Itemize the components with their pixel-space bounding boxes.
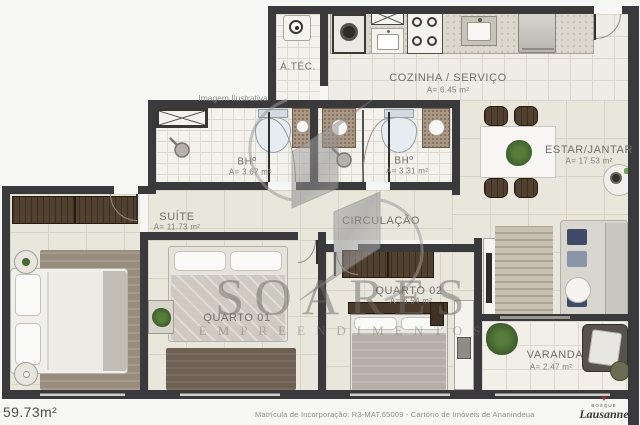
room-label-bh2: BHº	[394, 156, 413, 167]
fridge-icon	[518, 13, 556, 53]
wall	[310, 100, 318, 190]
room-label-atec: Á.TÉC.	[280, 62, 316, 73]
wall	[148, 100, 156, 190]
laundry-sink-icon	[371, 28, 404, 54]
wall	[148, 182, 268, 190]
pouf	[610, 361, 630, 381]
wall	[268, 6, 276, 108]
wall	[452, 100, 460, 195]
floorplan-canvas: Imagem Ilustrativa Á.TÉC. COZINHA / SERV…	[0, 0, 640, 425]
nightstand	[14, 250, 38, 274]
room-label-varanda: VARANDA	[527, 349, 584, 361]
total-area-label: 59.73m²	[3, 404, 57, 420]
sofa	[560, 220, 628, 320]
suite-bed	[10, 268, 128, 374]
room-area-bh2: A= 3.31 m²	[386, 167, 428, 176]
sliding-door	[500, 316, 570, 319]
brand-name: Lausanne	[578, 408, 630, 420]
registry-text: Matrícula de Incorporação: R3-MAT.65009 …	[255, 410, 535, 419]
watermark-subtitle: EMPREENDIMENTOS	[199, 323, 492, 339]
wall	[628, 6, 639, 425]
vanity-icon	[292, 108, 312, 148]
shaft-x-icon	[156, 108, 208, 128]
shower-icon	[168, 136, 192, 160]
wall	[326, 244, 334, 252]
nightstand	[14, 362, 38, 386]
wall	[140, 232, 298, 240]
illustrative-note: Imagem Ilustrativa	[198, 93, 267, 103]
wall	[148, 100, 460, 108]
vanity-icon	[422, 108, 450, 148]
wall	[2, 186, 10, 394]
watermark-name: SOARES	[215, 269, 474, 328]
room-label-circulacao: CIRCULAÇÃO	[342, 215, 420, 227]
room-area-bh1: A= 3.67 m²	[229, 168, 271, 177]
wall	[320, 6, 328, 86]
kitchen-sink-icon	[461, 16, 497, 46]
dining-chair	[484, 178, 508, 198]
room-label-suite: SUÍTE	[159, 211, 194, 223]
room-area-cozinha: A= 6.45 m²	[427, 86, 469, 95]
brand-emblem-icon: ♥	[597, 394, 611, 403]
room-label-cozinha: COZINHA / SERVIÇO	[389, 72, 507, 84]
room-label-bh1: BHº	[237, 157, 256, 168]
bedroom1-rug	[166, 348, 296, 390]
window	[180, 392, 280, 396]
living-rug	[495, 226, 553, 318]
window	[40, 392, 125, 396]
wall	[296, 182, 366, 190]
wall	[390, 182, 452, 190]
wall	[2, 186, 114, 194]
stove-icon	[407, 12, 443, 54]
wall	[474, 238, 482, 394]
coffee-table	[565, 277, 591, 303]
vanity-icon	[322, 108, 356, 148]
dining-chair	[514, 178, 538, 198]
plant-stand	[148, 300, 174, 334]
window	[350, 392, 450, 396]
washing-machine-icon	[332, 14, 366, 54]
room-label-estar: ESTAR/JANTAR	[545, 144, 633, 156]
room-area-varanda: A= 2.47 m²	[530, 363, 572, 372]
room-area-suite: A= 11.73 m²	[154, 223, 201, 232]
floor-drain-icon	[283, 15, 311, 41]
wall	[358, 244, 480, 252]
room-area-estar: A= 17.53 m²	[565, 157, 612, 166]
shower-icon	[330, 146, 354, 170]
wall	[140, 232, 148, 394]
dining-chair	[484, 106, 508, 126]
dining-chair	[514, 106, 538, 126]
wall	[268, 6, 594, 14]
brand-logo: ♥ BOSQUE Lausanne	[578, 394, 630, 420]
